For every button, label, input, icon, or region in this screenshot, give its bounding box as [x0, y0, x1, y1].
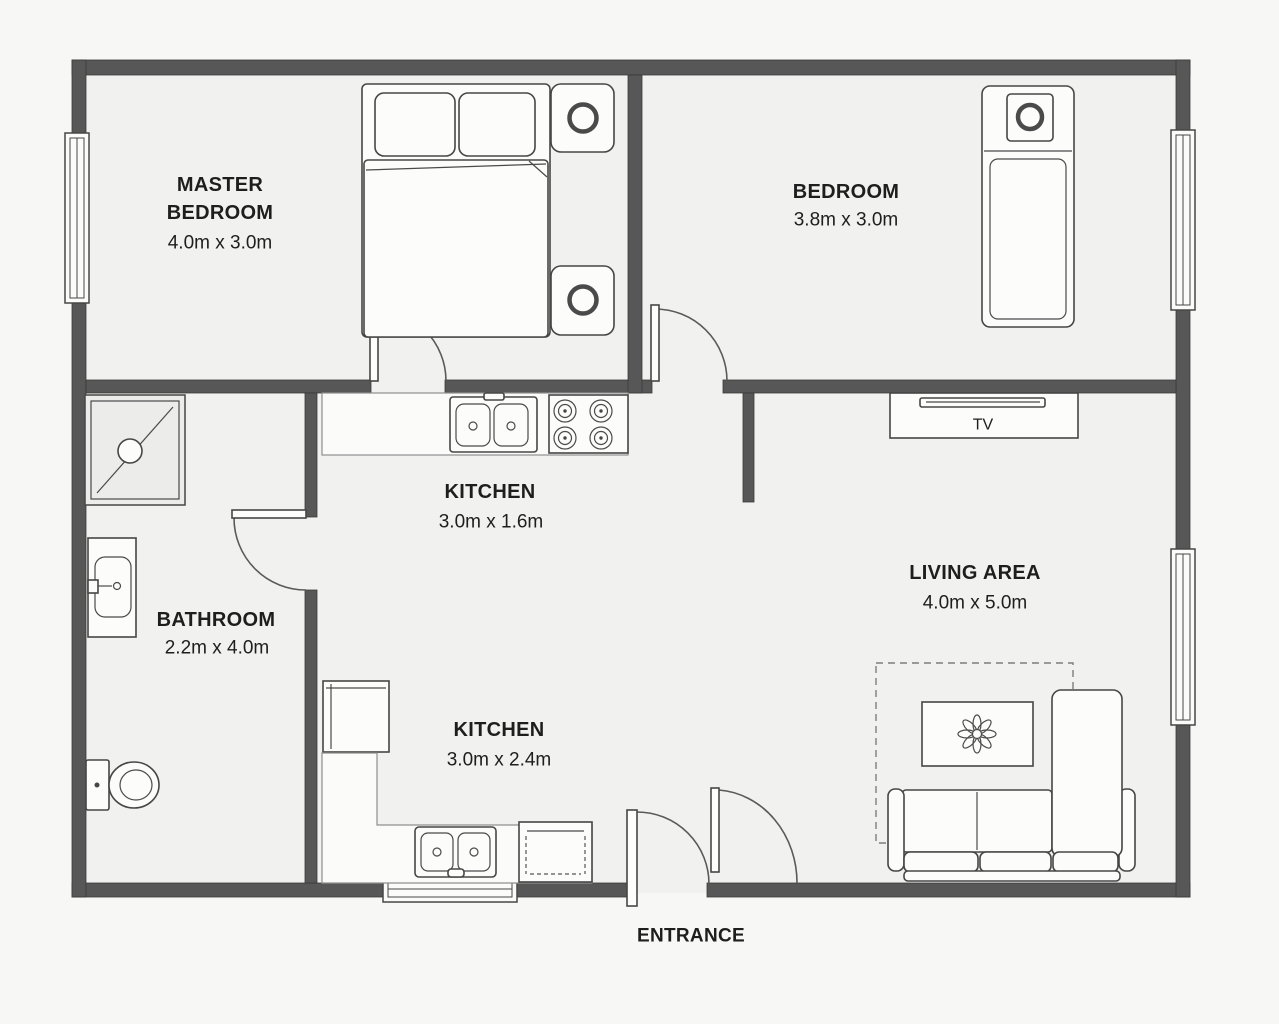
- faucet-icon: [448, 869, 464, 877]
- pillow: [375, 93, 455, 156]
- wall-mid-right: [723, 380, 1176, 393]
- bathroom-sink: [88, 538, 136, 637]
- room-dimensions: 3.0m x 1.6m: [439, 512, 544, 533]
- room-label: BATHROOM: [157, 609, 276, 631]
- door-leaf: [627, 810, 637, 906]
- wall-top: [72, 60, 1190, 75]
- pillow: [1007, 94, 1053, 141]
- room-label: BEDROOM: [167, 202, 274, 224]
- wall-bathroom-upper: [305, 393, 317, 517]
- sofa-armrest: [888, 789, 904, 871]
- floor-plan: MASTER BEDROOM 4.0m x 3.0m BEDROOM 3.8m …: [0, 0, 1279, 1024]
- wall-bottom-left: [72, 883, 628, 897]
- shower: [85, 395, 185, 505]
- blanket: [364, 160, 548, 337]
- sofa-base: [904, 871, 1120, 881]
- sofa-cushion: [1053, 852, 1118, 872]
- room-dimensions: 3.8m x 3.0m: [794, 210, 899, 231]
- toilet: [86, 760, 159, 810]
- window-bedroom: [1171, 130, 1195, 310]
- room-label: MASTER: [177, 174, 263, 196]
- room-dimensions: 4.0m x 3.0m: [168, 233, 273, 254]
- faucet-icon: [88, 580, 98, 593]
- double-sink: [450, 393, 537, 452]
- room-label: LIVING AREA: [909, 562, 1040, 584]
- double-sink: [415, 827, 496, 877]
- wall-kitchen-living-stub: [743, 393, 754, 502]
- coffee-table: [922, 702, 1033, 766]
- room-label: BEDROOM: [793, 181, 900, 203]
- sofa-cushion: [980, 852, 1051, 872]
- tv-label: TV: [973, 417, 994, 434]
- wall-mid-left: [86, 380, 371, 393]
- nightstand: [551, 84, 614, 152]
- single-bed: [982, 86, 1074, 327]
- wall-bottom-right: [707, 883, 1190, 897]
- room-label: KITCHEN: [454, 719, 545, 741]
- faucet-icon: [484, 393, 504, 400]
- room-dimensions: 4.0m x 5.0m: [923, 593, 1028, 614]
- double-bed: [362, 84, 550, 337]
- sofa-cushion: [904, 852, 978, 872]
- window-living-area: [1171, 549, 1195, 725]
- entrance-label: ENTRANCE: [637, 926, 745, 947]
- room-dimensions: 3.0m x 2.4m: [447, 750, 552, 771]
- shower-drain-icon: [118, 439, 142, 463]
- wall-mid-center: [445, 380, 652, 393]
- floor-plan-page: MASTER BEDROOM 4.0m x 3.0m BEDROOM 3.8m …: [0, 0, 1279, 1024]
- stove: [549, 395, 628, 453]
- window-master-bedroom: [65, 133, 89, 303]
- fridge: [323, 681, 389, 752]
- wall-between-bedrooms: [628, 75, 642, 393]
- wall-bathroom-lower: [305, 590, 317, 883]
- tv-cabinet: TV: [890, 393, 1078, 438]
- room-label: KITCHEN: [445, 481, 536, 503]
- sofa-chaise: [1052, 690, 1122, 857]
- dishwasher: [519, 822, 592, 882]
- nightstand: [551, 266, 614, 335]
- room-dimensions: 2.2m x 4.0m: [165, 638, 270, 659]
- door-leaf: [232, 510, 306, 518]
- door-leaf: [651, 305, 659, 381]
- pillow: [459, 93, 535, 156]
- door-leaf: [711, 788, 719, 872]
